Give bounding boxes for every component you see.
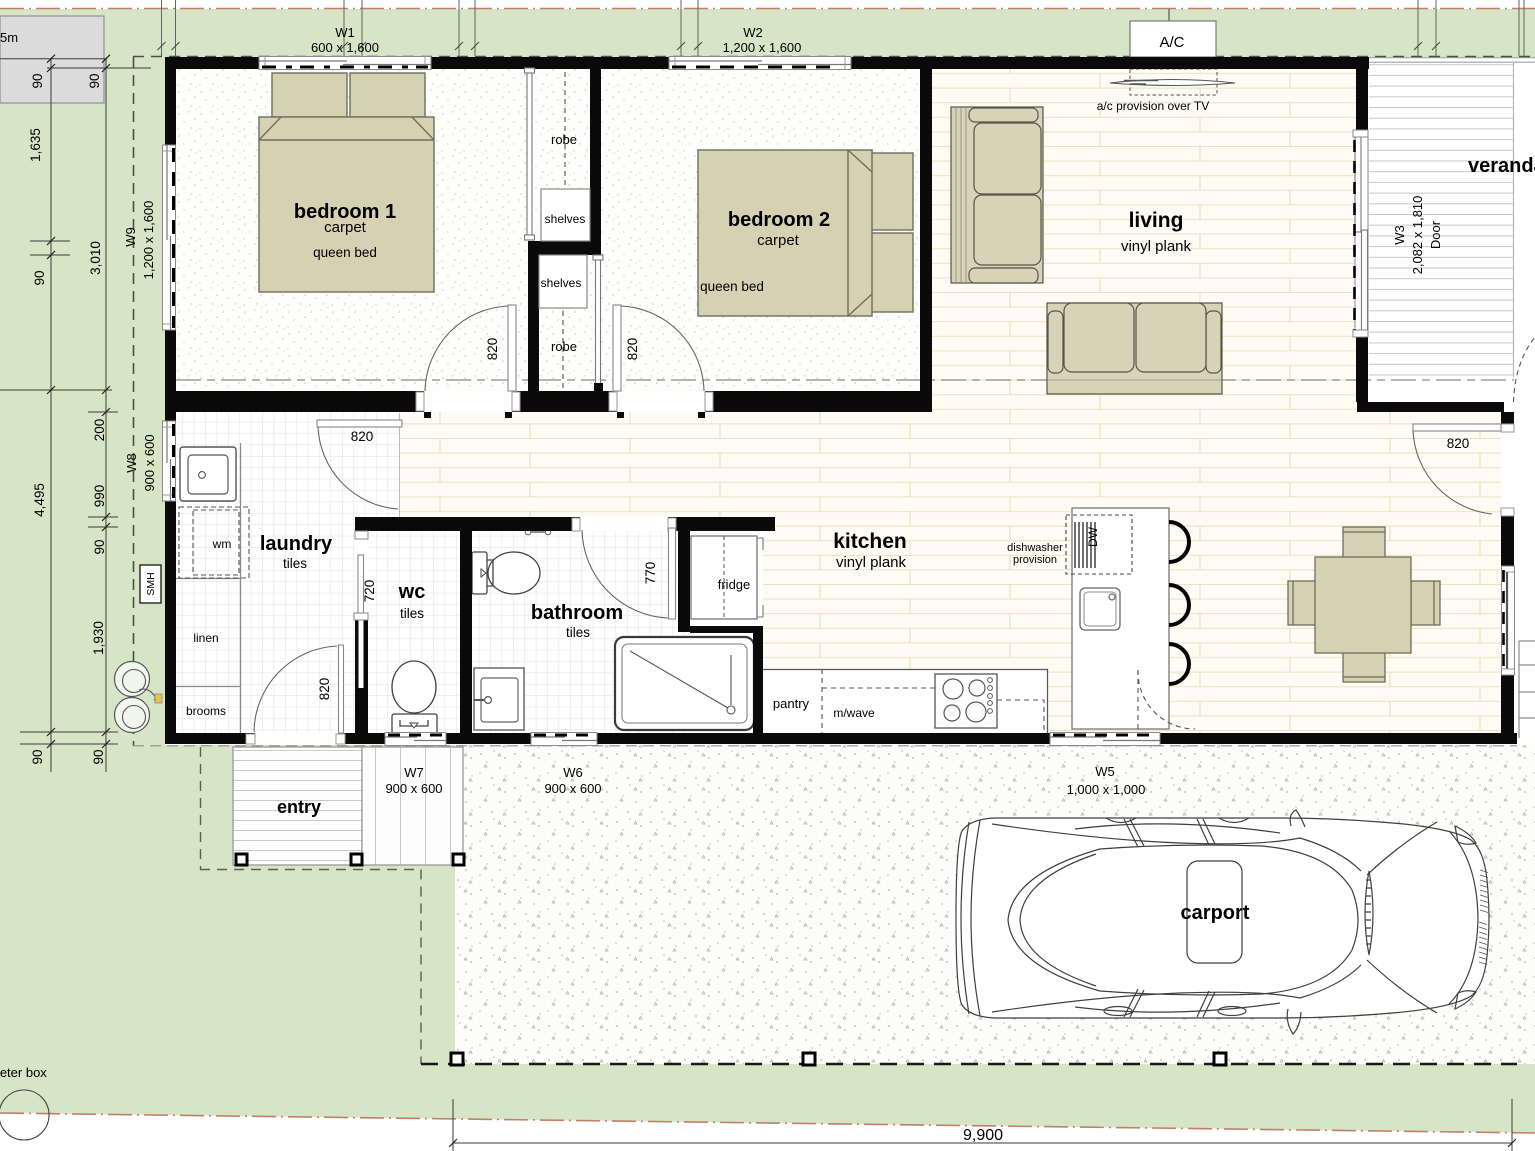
svg-text:1,000 x 1,000: 1,000 x 1,000 [1067,782,1146,797]
svg-text:820: 820 [485,338,500,361]
svg-text:linen: linen [193,631,218,645]
svg-text:carpet: carpet [324,219,367,236]
svg-text:5m: 5m [0,30,18,45]
svg-text:W1: W1 [335,25,355,40]
svg-text:carpet: carpet [757,232,800,249]
svg-text:laundry: laundry [260,533,333,555]
svg-text:9,900: 9,900 [963,1127,1003,1144]
svg-text:1,200 x 1,600: 1,200 x 1,600 [723,40,802,55]
svg-text:3,010: 3,010 [88,241,103,275]
svg-text:W5: W5 [1095,764,1115,779]
svg-text:A/C: A/C [1159,34,1184,51]
svg-text:900 x 600: 900 x 600 [544,781,601,796]
svg-text:pantry: pantry [773,696,810,711]
svg-text:a/c provision over TV: a/c provision over TV [1097,99,1210,113]
svg-text:90: 90 [92,539,107,554]
svg-text:4,495: 4,495 [32,483,47,517]
svg-text:770: 770 [643,562,658,585]
svg-text:vinyl plank: vinyl plank [1121,238,1192,255]
svg-text:90: 90 [91,749,106,764]
svg-text:kitchen: kitchen [833,530,907,553]
svg-text:brooms: brooms [186,704,226,718]
svg-text:820: 820 [625,338,640,361]
svg-text:queen bed: queen bed [700,279,764,294]
svg-text:shelves: shelves [545,212,586,226]
svg-text:carport: carport [1181,902,1250,924]
svg-text:wm: wm [212,537,232,551]
svg-text:990: 990 [92,485,107,508]
svg-text:W8: W8 [124,453,139,473]
svg-text:90: 90 [30,749,45,764]
svg-text:provision: provision [1013,554,1057,566]
svg-text:1,635: 1,635 [28,128,43,162]
svg-text:W3: W3 [1392,225,1407,245]
svg-text:90: 90 [32,270,47,285]
svg-text:living: living [1129,209,1184,232]
svg-text:W2: W2 [743,25,763,40]
svg-text:W6: W6 [563,765,583,780]
svg-text:DW: DW [1086,526,1100,547]
svg-text:820: 820 [351,429,374,444]
svg-text:Door: Door [1428,220,1443,249]
svg-text:tiles: tiles [566,625,590,640]
svg-text:shelves: shelves [541,276,582,290]
svg-text:1,200 x 1,600: 1,200 x 1,600 [141,201,156,280]
svg-text:entry: entry [277,797,321,817]
svg-text:queen bed: queen bed [313,245,377,260]
svg-text:820: 820 [1447,436,1470,451]
svg-text:fridge: fridge [718,577,751,592]
svg-text:900 x 600: 900 x 600 [385,781,442,796]
svg-text:W7: W7 [404,765,424,780]
svg-text:dishwasher: dishwasher [1007,542,1063,554]
svg-text:90: 90 [30,73,45,88]
svg-text:bedroom 2: bedroom 2 [728,209,830,231]
svg-text:m/wave: m/wave [833,706,875,720]
svg-text:820: 820 [317,678,332,701]
svg-text:vinyl plank: vinyl plank [836,554,907,571]
svg-text:2,082 x 1,810: 2,082 x 1,810 [1410,196,1425,275]
svg-text:bathroom: bathroom [531,602,623,624]
svg-text:wc: wc [398,581,426,603]
svg-text:600 x 1,600: 600 x 1,600 [311,40,379,55]
svg-text:robe: robe [551,132,577,147]
svg-text:1,930: 1,930 [91,621,106,655]
svg-text:W9: W9 [123,227,138,247]
svg-text:robe: robe [551,339,577,354]
svg-text:verandah: verandah [1468,155,1535,177]
svg-text:90: 90 [87,73,102,88]
svg-text:tiles: tiles [400,606,424,621]
svg-text:tiles: tiles [283,556,307,571]
svg-text:900 x 600: 900 x 600 [142,434,157,491]
svg-text:200: 200 [92,419,107,442]
svg-text:meter box: meter box [0,1065,47,1080]
svg-text:720: 720 [362,580,377,603]
svg-text:SMH: SMH [145,572,157,595]
